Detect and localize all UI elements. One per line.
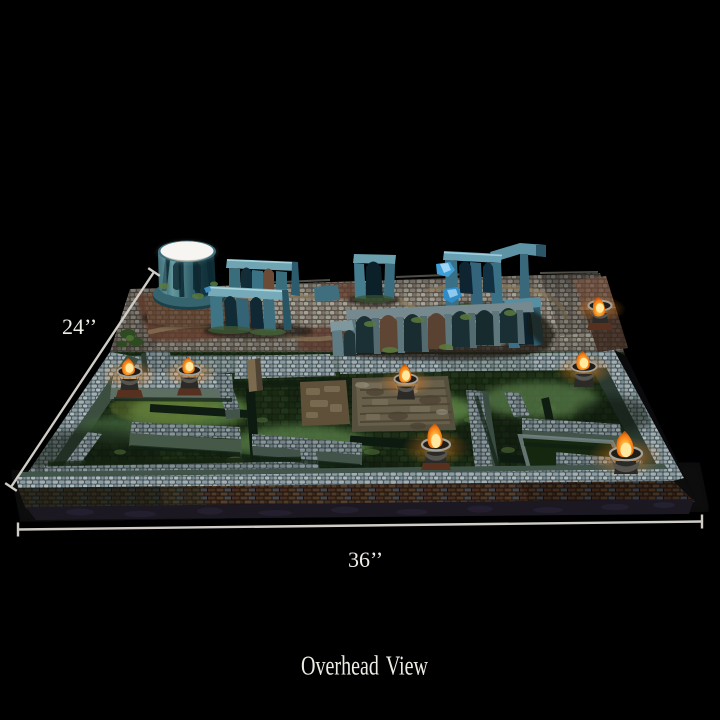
svg-text:36’’: 36’’ [348, 547, 383, 572]
svg-text:24’’: 24’’ [62, 314, 97, 339]
svg-text:Overhead View: Overhead View [301, 651, 428, 681]
